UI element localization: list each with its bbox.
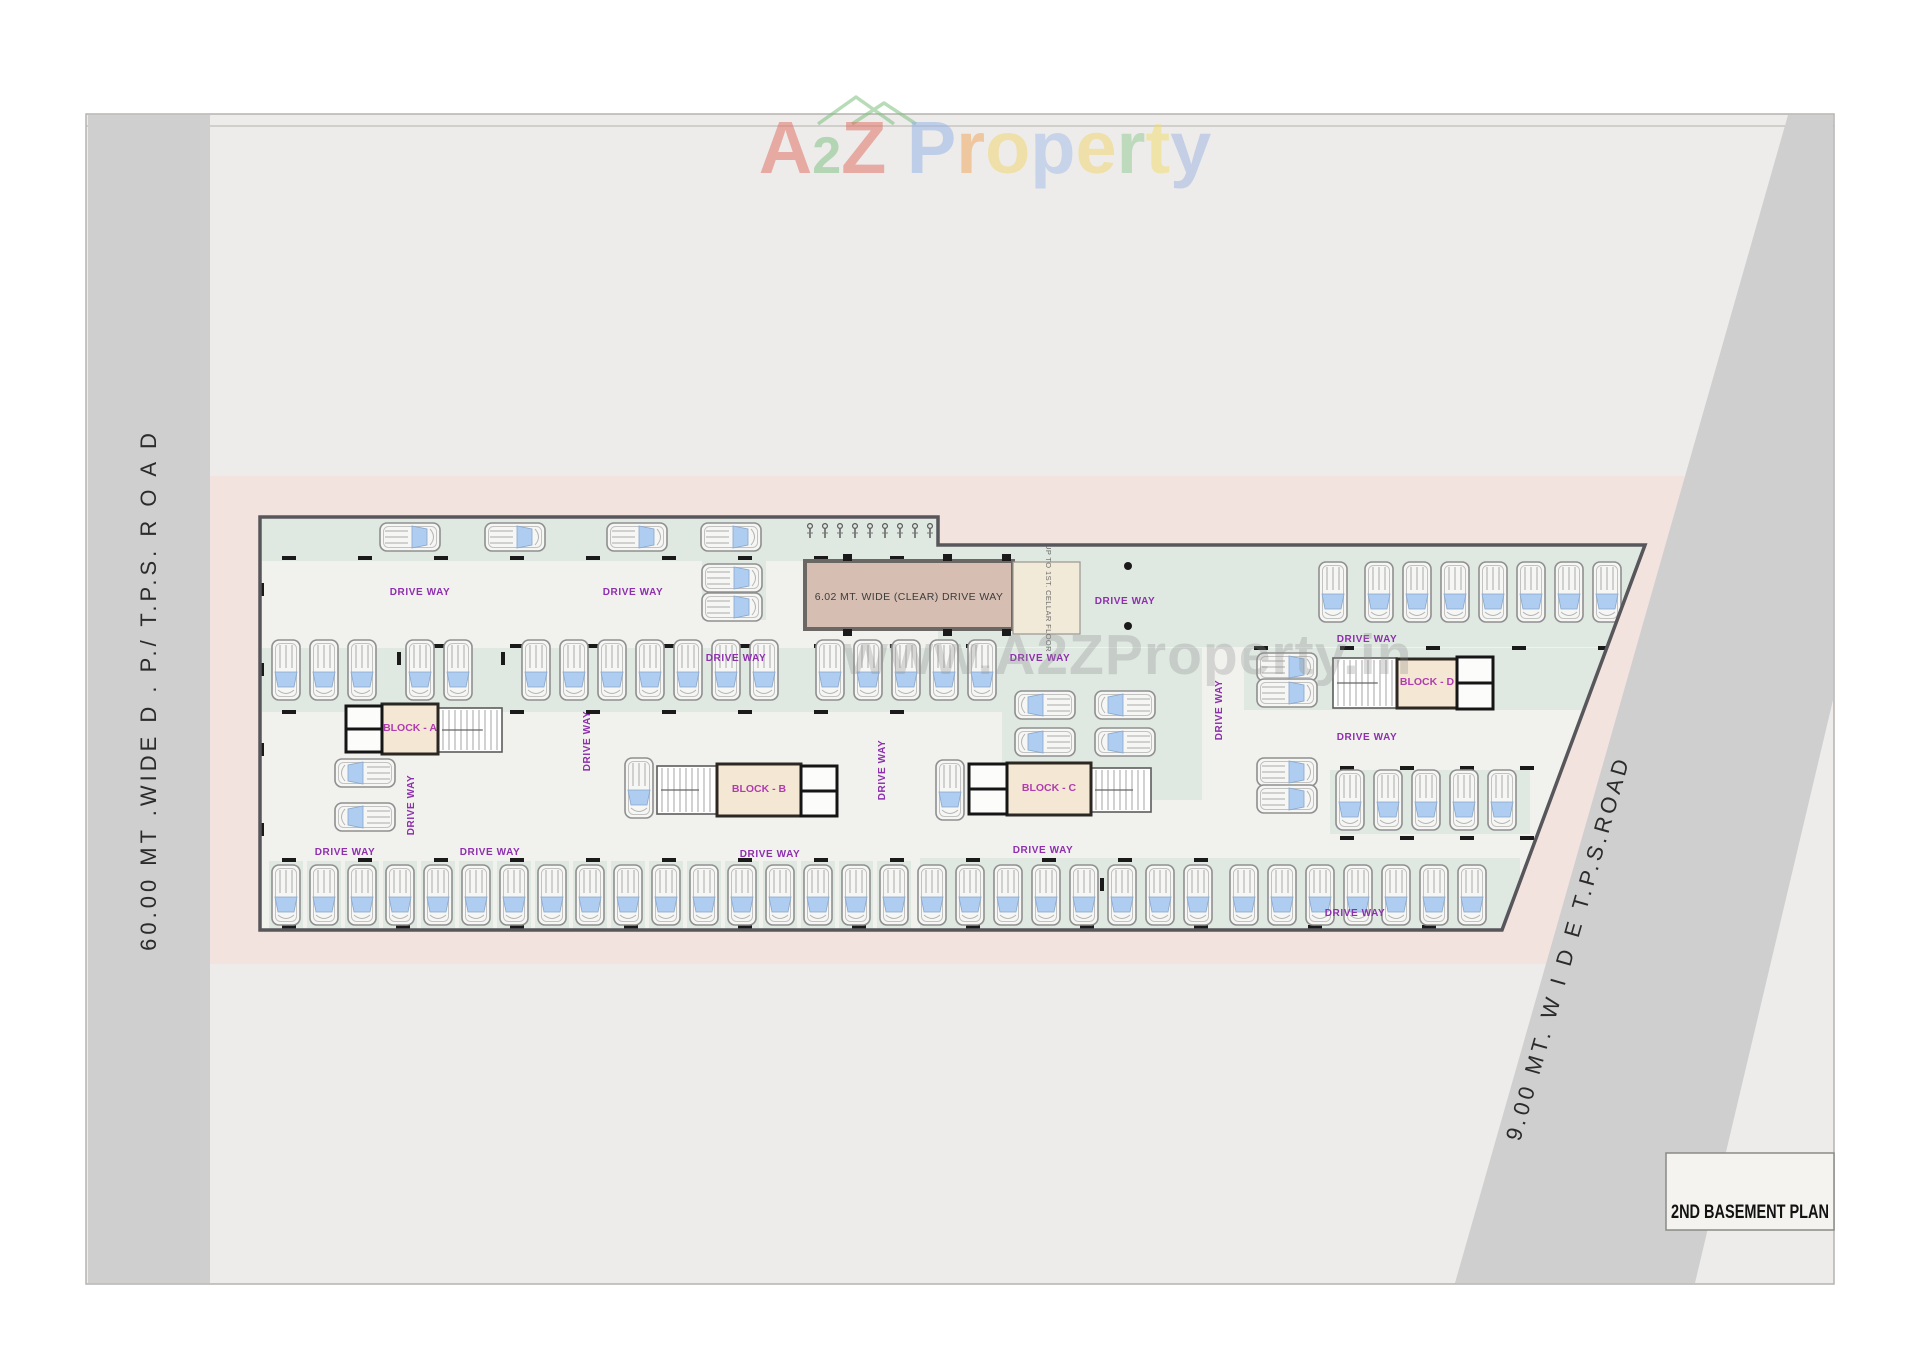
car-icon [1374, 770, 1402, 830]
car-icon [462, 865, 490, 925]
car-icon [335, 803, 395, 831]
column-marker [586, 858, 600, 862]
car-icon [702, 564, 762, 592]
car-icon [956, 865, 984, 925]
car-icon [1184, 865, 1212, 925]
driveway-label: DRIVE WAY [877, 740, 888, 801]
car-icon [674, 640, 702, 700]
column-marker [1426, 646, 1440, 650]
driveway-label: DRIVE WAY [706, 653, 767, 664]
ramp-label: 6.02 MT. WIDE (CLEAR) DRIVE WAY [815, 591, 1004, 603]
car-icon [842, 865, 870, 925]
car-icon [1095, 728, 1155, 756]
column-marker [434, 556, 448, 560]
column-marker [943, 554, 952, 561]
car-icon [1555, 562, 1583, 622]
car-icon [406, 640, 434, 700]
column-marker [1400, 766, 1414, 770]
driveway-label: DRIVE WAY [1214, 680, 1225, 741]
column-marker [397, 652, 401, 665]
column-marker [358, 858, 372, 862]
car-icon [816, 640, 844, 700]
column-marker [966, 858, 980, 862]
car-icon [1336, 770, 1364, 830]
column-marker [890, 858, 904, 862]
car-icon [607, 523, 667, 551]
car-icon [1412, 770, 1440, 830]
block-b: BLOCK - B [657, 764, 837, 816]
car-icon [1403, 562, 1431, 622]
car-icon [335, 759, 395, 787]
parking-bay [262, 519, 938, 561]
car-icon [804, 865, 832, 925]
car-icon [310, 640, 338, 700]
car-icon [1420, 865, 1448, 925]
plan-title: 2ND BASEMENT PLAN [1671, 1202, 1829, 1223]
column-marker [662, 710, 676, 714]
column-marker [814, 858, 828, 862]
car-icon [522, 640, 550, 700]
car-icon [1319, 562, 1347, 622]
block-label: BLOCK - B [732, 783, 787, 795]
car-icon [994, 865, 1022, 925]
car-icon [500, 865, 528, 925]
car-icon [1032, 865, 1060, 925]
car-icon [625, 758, 653, 818]
column-marker [586, 556, 600, 560]
column-marker [843, 554, 852, 561]
column-marker [282, 710, 296, 714]
car-icon [386, 865, 414, 925]
car-icon [1015, 728, 1075, 756]
car-icon [348, 865, 376, 925]
car-icon [636, 640, 664, 700]
column-marker [1194, 858, 1208, 862]
column-marker [738, 556, 752, 560]
column-marker [814, 710, 828, 714]
car-icon [1450, 770, 1478, 830]
column-marker [434, 858, 448, 862]
column-marker [282, 858, 296, 862]
car-icon [614, 865, 642, 925]
car-icon [310, 865, 338, 925]
left-road-label: 60.00 MT .WIDE D . P./ T.P.S. R O A D [136, 429, 161, 951]
car-icon [598, 640, 626, 700]
car-icon [1517, 562, 1545, 622]
block-c: BLOCK - C [969, 763, 1151, 815]
car-icon [766, 865, 794, 925]
column-marker [1100, 878, 1104, 891]
column-marker [1340, 836, 1354, 840]
column-marker [1512, 646, 1526, 650]
car-icon [1230, 865, 1258, 925]
car-icon [424, 865, 452, 925]
plan-title-box: 2ND BASEMENT PLAN [1666, 1153, 1834, 1230]
driveway-label: DRIVE WAY [460, 847, 521, 858]
car-icon [690, 865, 718, 925]
block-a: BLOCK - A [346, 704, 502, 754]
column-marker [662, 858, 676, 862]
block-label: BLOCK - C [1022, 782, 1077, 794]
column-marker [1118, 858, 1132, 862]
floor-plan-sheet: 60.00 MT .WIDE D . P./ T.P.S. R O A D 9.… [0, 0, 1920, 1357]
driveway-label: DRIVE WAY [1325, 908, 1386, 919]
car-icon [380, 523, 440, 551]
car-icon [1257, 785, 1317, 813]
basement-plan: 6.02 MT. WIDE (CLEAR) DRIVE WAY UP TO 1S… [260, 517, 1645, 930]
driveway-label: DRIVE WAY [390, 587, 451, 598]
car-icon [1257, 758, 1317, 786]
car-icon [702, 593, 762, 621]
column-marker [501, 652, 505, 665]
car-icon [538, 865, 566, 925]
car-icon [1365, 562, 1393, 622]
car-icon [1479, 562, 1507, 622]
car-icon [1458, 865, 1486, 925]
column-marker [1124, 562, 1132, 570]
car-icon [348, 640, 376, 700]
car-icon [1268, 865, 1296, 925]
car-icon [1070, 865, 1098, 925]
driveway-label: DRIVE WAY [1013, 845, 1074, 856]
column-marker [358, 556, 372, 560]
column-marker [510, 556, 524, 560]
car-icon [750, 640, 778, 700]
car-icon [936, 760, 964, 820]
driveway-label: DRIVE WAY [315, 847, 376, 858]
driveway-label: DRIVE WAY [582, 711, 593, 772]
car-icon [701, 523, 761, 551]
driveway-label: DRIVE WAY [1337, 732, 1398, 743]
column-marker [1042, 858, 1056, 862]
block-label: BLOCK - A [383, 722, 437, 734]
car-icon [1108, 865, 1136, 925]
driveway-label: DRIVE WAY [740, 849, 801, 860]
car-icon [1593, 562, 1621, 622]
column-marker [662, 556, 676, 560]
column-marker [282, 556, 296, 560]
car-icon [272, 640, 300, 700]
column-marker [738, 710, 752, 714]
car-icon [728, 865, 756, 925]
column-marker [890, 710, 904, 714]
car-icon [1146, 865, 1174, 925]
column-marker [1460, 836, 1474, 840]
column-marker [510, 858, 524, 862]
car-icon [918, 865, 946, 925]
driveway-label: DRIVE WAY [603, 587, 664, 598]
watermark: www.A2ZProperty.in [842, 623, 1412, 687]
car-icon [1441, 562, 1469, 622]
car-icon [652, 865, 680, 925]
driveway-label: DRIVE WAY [1095, 596, 1156, 607]
car-icon [880, 865, 908, 925]
car-icon [485, 523, 545, 551]
car-icon [444, 640, 472, 700]
car-icon [272, 865, 300, 925]
column-marker [1002, 554, 1011, 561]
car-icon [1382, 865, 1410, 925]
left-road: 60.00 MT .WIDE D . P./ T.P.S. R O A D [88, 115, 210, 1283]
car-icon [1095, 691, 1155, 719]
car-icon [712, 640, 740, 700]
car-icon [560, 640, 588, 700]
driveway-label: DRIVE WAY [406, 775, 417, 836]
column-marker [1400, 836, 1414, 840]
column-marker [1520, 766, 1534, 770]
car-icon [1015, 691, 1075, 719]
column-marker [1520, 836, 1534, 840]
car-icon [576, 865, 604, 925]
column-marker [510, 710, 524, 714]
car-icon [1488, 770, 1516, 830]
